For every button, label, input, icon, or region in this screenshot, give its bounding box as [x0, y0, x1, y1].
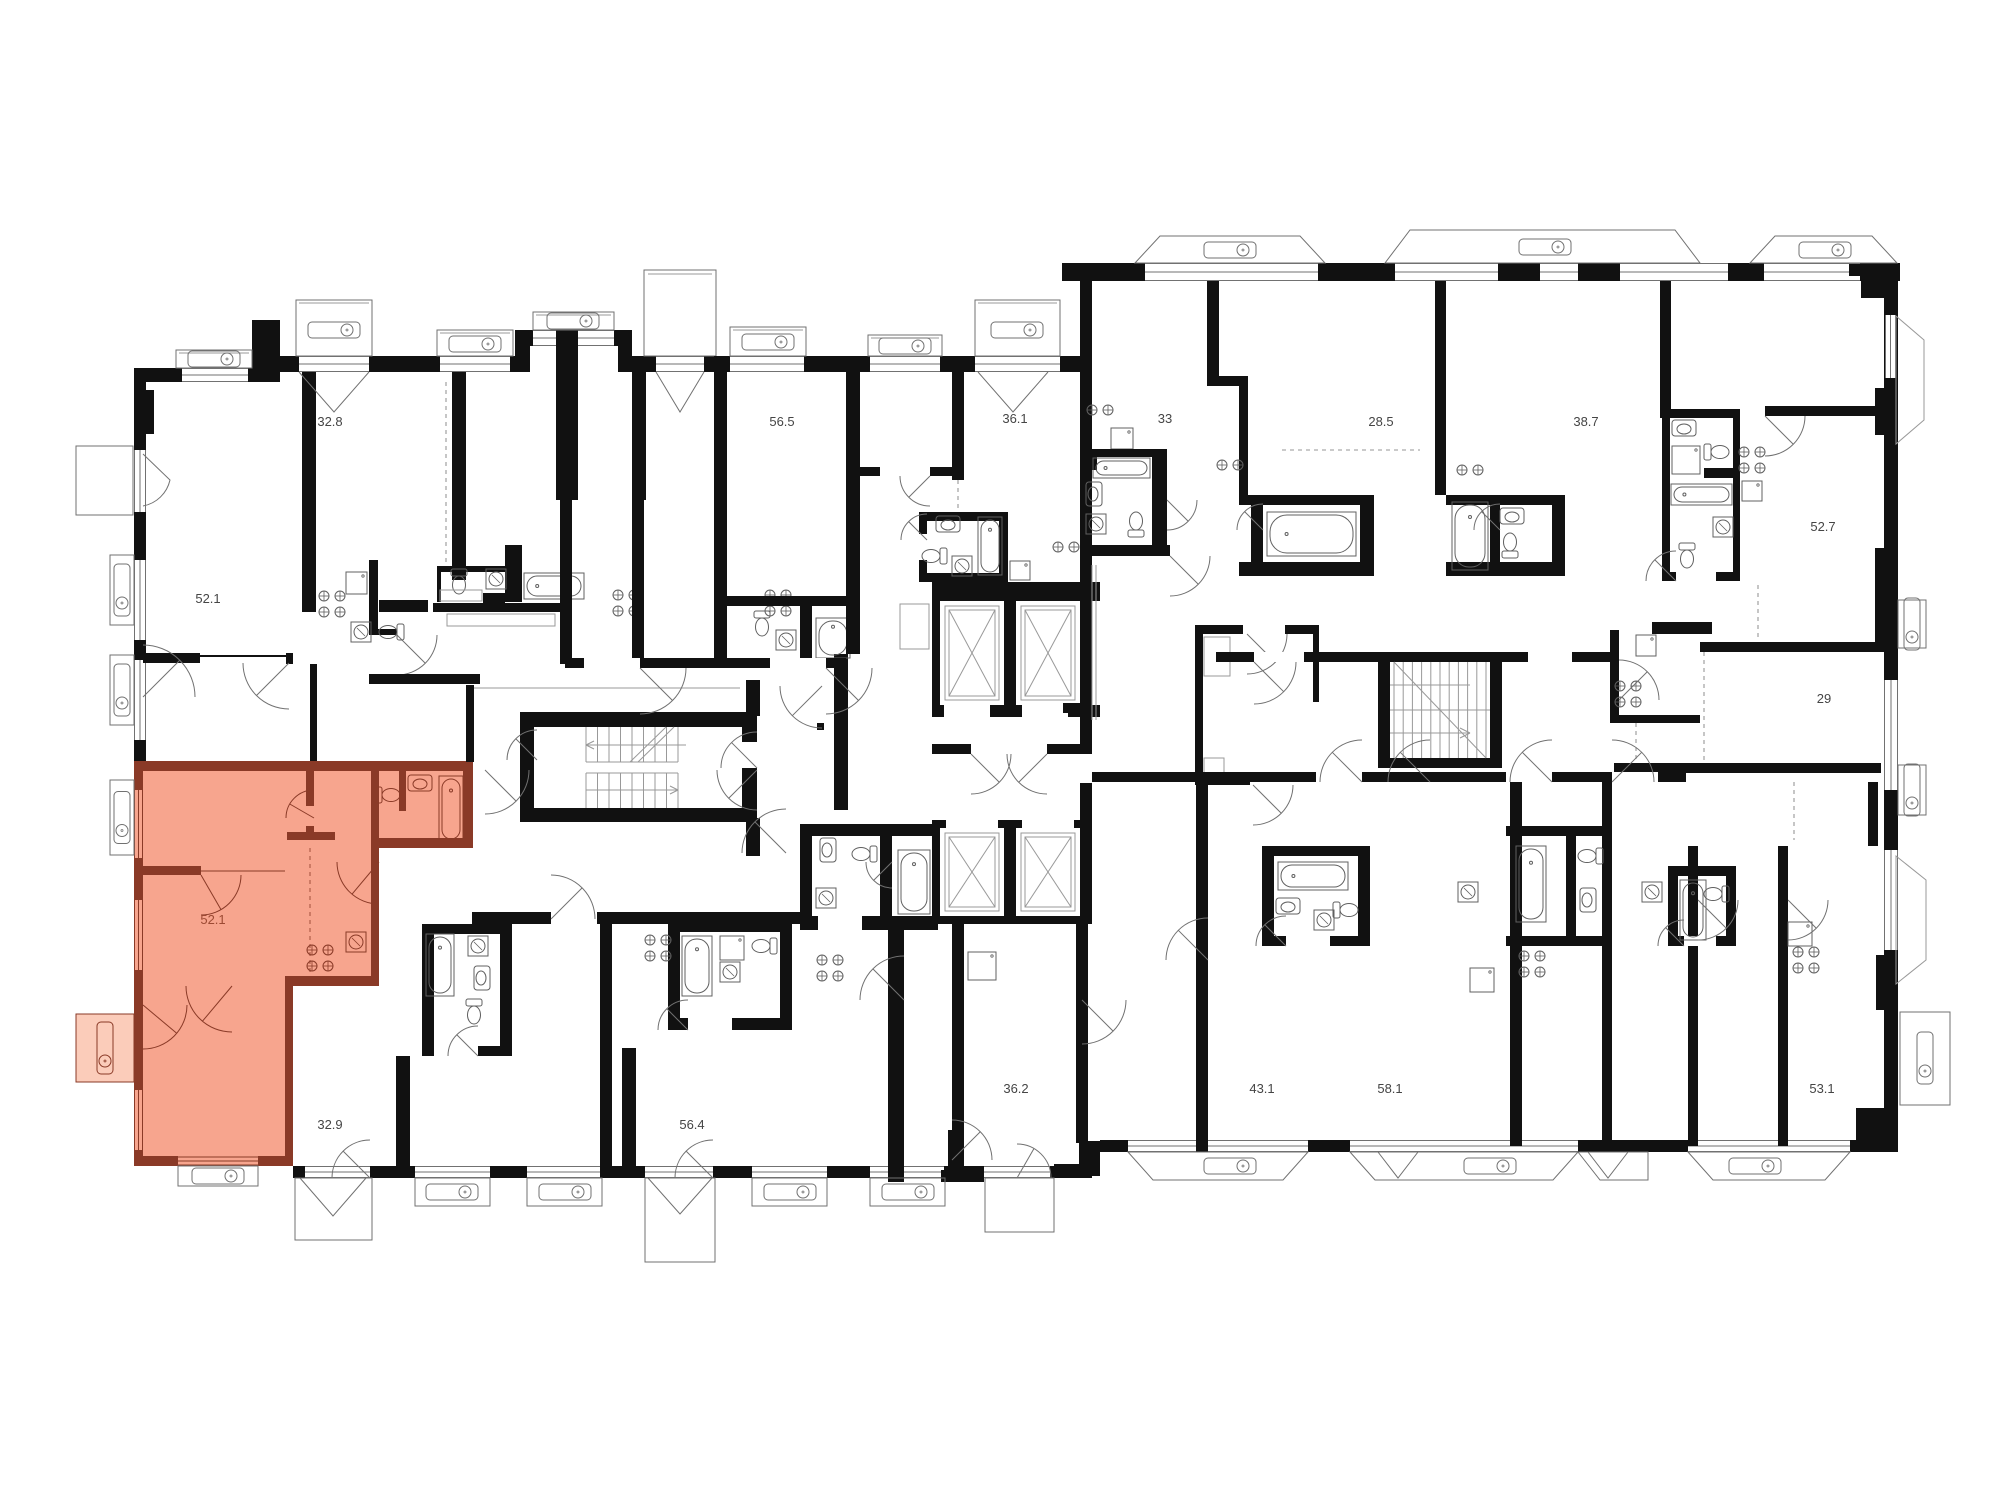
- svg-text:56.5: 56.5: [769, 414, 794, 429]
- svg-text:52.1: 52.1: [200, 912, 225, 927]
- svg-text:52.1: 52.1: [195, 591, 220, 606]
- svg-text:43.1: 43.1: [1249, 1081, 1274, 1096]
- svg-text:56.4: 56.4: [679, 1117, 704, 1132]
- svg-text:52.7: 52.7: [1810, 519, 1835, 534]
- svg-text:53.1: 53.1: [1809, 1081, 1834, 1096]
- svg-text:58.1: 58.1: [1377, 1081, 1402, 1096]
- svg-text:28.5: 28.5: [1368, 414, 1393, 429]
- svg-text:33: 33: [1158, 411, 1172, 426]
- svg-text:36.1: 36.1: [1002, 411, 1027, 426]
- svg-text:29: 29: [1817, 691, 1831, 706]
- svg-text:38.7: 38.7: [1573, 414, 1598, 429]
- svg-text:32.9: 32.9: [317, 1117, 342, 1132]
- svg-text:36.2: 36.2: [1003, 1081, 1028, 1096]
- svg-text:32.8: 32.8: [317, 414, 342, 429]
